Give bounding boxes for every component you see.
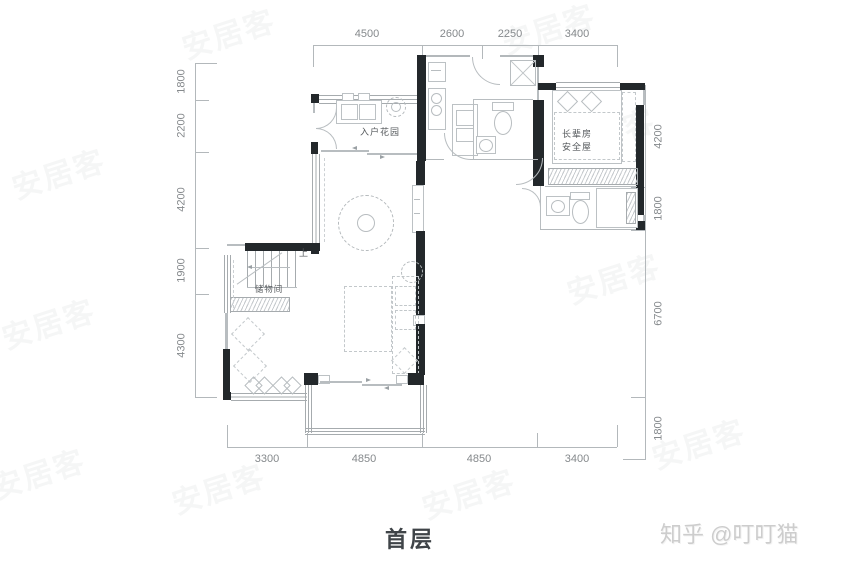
slide-arrow (384, 386, 389, 390)
wall-segment (538, 83, 556, 90)
wall-segment (408, 373, 424, 385)
stairs-arrow (247, 265, 252, 269)
dimension-value: 4200 (653, 107, 666, 167)
slide-arrow (366, 378, 371, 382)
dimension-line (645, 85, 646, 460)
dimension-tick (313, 45, 314, 67)
plant (401, 261, 423, 283)
credit-watermark: 知乎 @叮叮猫 (660, 517, 845, 549)
toilet-tank (570, 192, 590, 200)
room-label-storage: 储物间 (239, 283, 299, 295)
dimension-value: 2200 (176, 96, 189, 156)
dimension-tick (227, 425, 228, 447)
dimension-tick (195, 294, 209, 295)
dimension-tick (631, 230, 645, 231)
dimension-tick (631, 397, 645, 398)
garden-chair (358, 93, 370, 101)
balcony-wall (420, 385, 427, 433)
door-arc (472, 57, 500, 85)
dimension-line (313, 45, 617, 46)
stove-burner (431, 93, 442, 104)
curtain (233, 260, 235, 308)
watermark-tile: 安居客 (561, 241, 666, 313)
dimension-value: 4850 (449, 453, 509, 466)
dimension-value: 2600 (422, 28, 482, 41)
watermark-tile: 安居客 (176, 0, 281, 68)
bathroom-sink-basin (551, 200, 565, 213)
dimension-tick (623, 459, 645, 460)
dimension-value: 3400 (547, 453, 607, 466)
dimension-tick (195, 100, 209, 101)
dimension-tick (195, 152, 209, 153)
shower-bench (626, 192, 636, 224)
window (231, 393, 307, 401)
sofa-cushion (395, 286, 416, 306)
toilet-tank (492, 102, 514, 111)
window-seat-cushion (255, 376, 273, 394)
wall-segment (223, 349, 230, 398)
dimension-value: 4200 (176, 170, 189, 230)
balcony-wall (305, 428, 425, 435)
slide-arrow (352, 146, 357, 150)
room-label-entry-garden: 入户花园 (340, 126, 420, 138)
wall-segment (311, 94, 319, 103)
garden-chair (359, 104, 376, 120)
dimension-value: 1800 (653, 399, 666, 459)
kitchen-appliance (428, 62, 446, 82)
slider-track-box (396, 375, 408, 384)
curtain (622, 92, 636, 162)
round-planter-center (357, 214, 375, 232)
wall-segment (416, 161, 425, 185)
wall-segment (313, 103, 315, 113)
dimension-value: 4300 (176, 316, 189, 376)
garden-chair (342, 93, 354, 101)
garden-chair (341, 104, 358, 120)
wall-segment (643, 90, 645, 105)
wall-segment (426, 55, 470, 57)
curtain (324, 158, 326, 242)
dimension-tick (617, 425, 618, 447)
wall-segment (473, 100, 474, 159)
wall-segment (223, 392, 231, 400)
wall-segment (540, 186, 541, 229)
dimension-value: 3400 (547, 28, 607, 41)
sliding-door (362, 384, 402, 386)
window (224, 255, 231, 313)
room-label-elder: 长辈房 (547, 128, 607, 140)
sliding-door (320, 381, 362, 383)
dimension-tick (307, 433, 308, 447)
kitchen-sink (456, 110, 474, 126)
floorplan-page: 安居客 安居客 安居客 安居客 安居客 安居客 安居客 安居客 安居客 安居客 … (0, 0, 850, 567)
dimension-value: 6700 (653, 284, 666, 344)
entry-door-arc (316, 108, 337, 129)
dimension-value: 1900 (176, 241, 189, 301)
sofa-cushion (395, 310, 416, 330)
kitchen-appliance-detail (431, 70, 441, 71)
armchair (231, 317, 265, 351)
wall-segment (545, 186, 637, 187)
hall-cabinet-shelf (414, 199, 420, 200)
wall-segment (540, 229, 645, 230)
stairs-arrow-line (252, 267, 290, 268)
wall-segment (417, 55, 426, 161)
dimension-tick (195, 63, 217, 64)
stairs-up-label: 上 (296, 247, 312, 259)
dimension-tick (195, 397, 217, 398)
wall-segment (304, 373, 318, 385)
wall-segment (620, 83, 645, 90)
dimension-tick (617, 45, 618, 67)
watermark-tile: 安居客 (6, 136, 111, 208)
dimension-value: 4500 (337, 28, 397, 41)
floor-title: 首层 (330, 522, 490, 554)
toilet-bowl (572, 200, 589, 224)
sliding-door (321, 150, 369, 152)
dining-table (344, 286, 392, 352)
wall-segment (225, 313, 228, 349)
dimension-value: 4850 (334, 453, 394, 466)
dimension-tick (422, 433, 423, 447)
wall-segment (311, 142, 318, 154)
dimension-value: 3300 (237, 453, 297, 466)
stairs (247, 251, 297, 287)
door-arc (444, 133, 471, 160)
window (312, 154, 320, 244)
dimension-value: 2250 (480, 28, 540, 41)
toilet-bowl (494, 111, 512, 135)
shaft (510, 60, 536, 86)
dimension-line (195, 63, 196, 398)
wardrobe (548, 168, 638, 185)
sliding-door (367, 153, 417, 155)
wall-segment (426, 159, 444, 160)
plant-center (391, 102, 401, 112)
watermark-tile: 安居客 (416, 456, 521, 528)
entry-door-arc (316, 128, 337, 149)
dimension-tick (195, 248, 209, 249)
storage-shelf (230, 297, 290, 312)
slide-arrow (380, 155, 385, 159)
wall-segment (473, 99, 533, 100)
balcony-wall (305, 385, 312, 433)
wall-segment (227, 244, 245, 246)
dimension-line (227, 447, 617, 448)
watermark-tile: 安居客 (0, 286, 100, 358)
dimension-value: 1800 (653, 179, 666, 239)
stove-burner (431, 105, 442, 116)
room-label-safe: 安全屋 (547, 141, 607, 153)
hall-cabinet (412, 185, 424, 233)
window-seat-cushion (283, 376, 301, 394)
door-arc (522, 188, 541, 207)
dimension-tick (537, 433, 538, 447)
hall-cabinet-shelf (414, 213, 420, 214)
bathroom-sink-basin (479, 139, 493, 152)
watermark-tile: 安居客 (0, 436, 90, 508)
